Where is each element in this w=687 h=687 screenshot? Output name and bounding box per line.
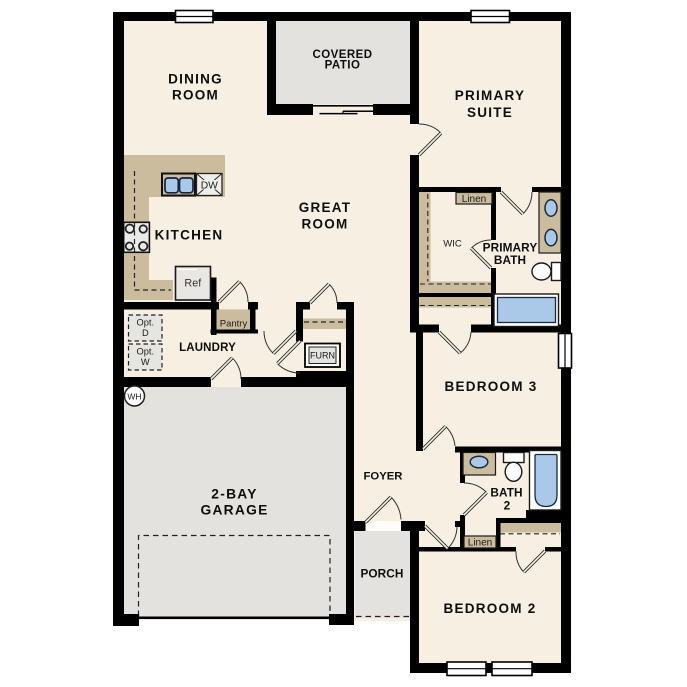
svg-text:BEDROOM 3: BEDROOM 3 <box>444 379 537 394</box>
svg-text:2-BAY: 2-BAY <box>211 486 257 501</box>
svg-text:WH: WH <box>127 391 141 401</box>
svg-text:SUITE: SUITE <box>467 105 513 120</box>
svg-text:DW: DW <box>201 180 218 191</box>
svg-text:GREAT: GREAT <box>299 200 352 215</box>
svg-text:BATH: BATH <box>494 253 526 267</box>
svg-text:LAUNDRY: LAUNDRY <box>179 342 236 354</box>
svg-text:Linen: Linen <box>462 194 486 205</box>
svg-text:BATH: BATH <box>490 486 522 500</box>
svg-text:KITCHEN: KITCHEN <box>155 228 224 243</box>
svg-text:D: D <box>142 328 149 338</box>
svg-text:2: 2 <box>504 499 511 513</box>
svg-text:PATIO: PATIO <box>325 60 361 72</box>
svg-text:GARAGE: GARAGE <box>200 503 268 518</box>
svg-text:DINING: DINING <box>168 71 223 86</box>
svg-text:Ref: Ref <box>184 278 202 290</box>
svg-text:Opt.: Opt. <box>137 347 155 357</box>
svg-text:PORCH: PORCH <box>360 567 403 581</box>
svg-text:Opt.: Opt. <box>137 318 155 328</box>
svg-text:ROOM: ROOM <box>302 216 349 231</box>
svg-text:Linen: Linen <box>468 538 492 549</box>
svg-text:W: W <box>141 357 150 367</box>
svg-text:PRIMARY: PRIMARY <box>455 88 526 103</box>
svg-text:FURN: FURN <box>310 351 335 361</box>
svg-text:BEDROOM 2: BEDROOM 2 <box>443 601 536 616</box>
svg-text:Pantry: Pantry <box>220 319 248 330</box>
svg-text:ROOM: ROOM <box>172 88 219 103</box>
svg-text:WIC: WIC <box>443 238 462 249</box>
svg-text:FOYER: FOYER <box>364 470 403 482</box>
